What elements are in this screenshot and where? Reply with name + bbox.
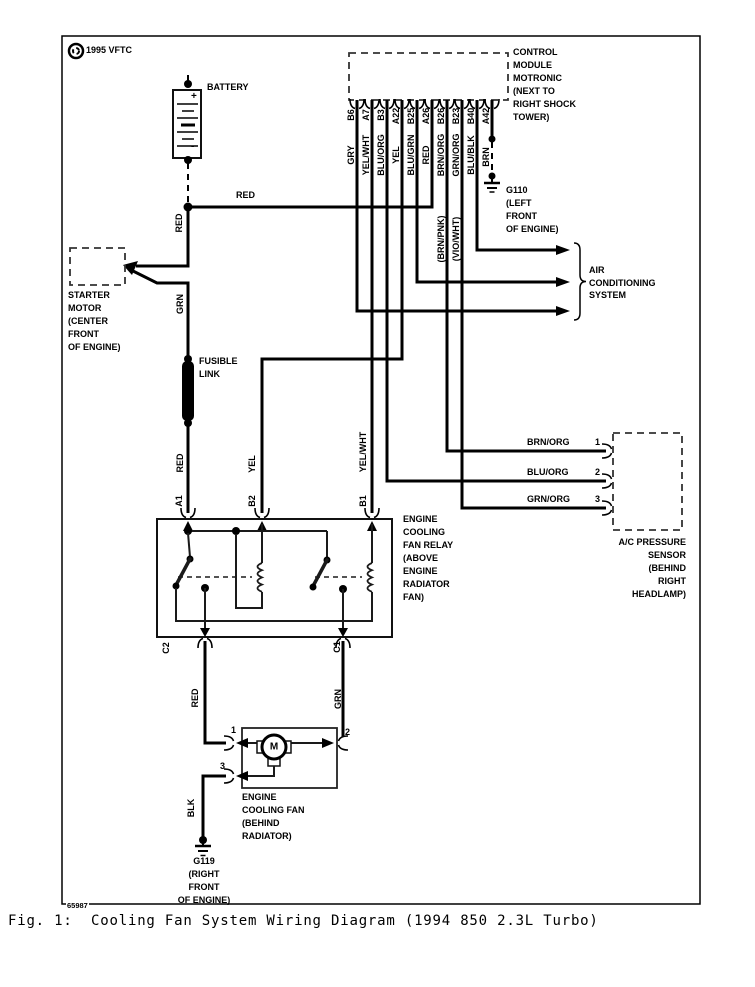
relay-label: ENGINE COOLING FAN RELAY (ABOVE ENGINE R… — [403, 513, 453, 604]
sensor-wire-color: BRN/ORG — [527, 437, 570, 447]
ac-arrows — [556, 243, 586, 320]
engine-cooling-fan-label: ENGINE COOLING FAN (BEHIND RADIATOR) — [242, 791, 305, 843]
module-pin-id: B23 — [451, 108, 461, 125]
module-pin-color: YEL/WHT — [361, 135, 371, 176]
sensor-pin-num: 3 — [595, 494, 600, 504]
wiring-diagram-page: 1995 VFTC BATTERY + - RED CONTROL MODULE… — [0, 0, 755, 987]
relay-pin-c2: C2 — [161, 642, 171, 654]
module-pin-color: BLU/BLK — [466, 135, 476, 175]
relay-pin-a1: A1 — [174, 495, 184, 507]
module-pin-id: B3 — [376, 109, 386, 121]
wire-label-red-feed: RED — [236, 190, 255, 200]
battery-label: BATTERY — [207, 82, 249, 92]
g119-label: G119 (RIGHT FRONT OF ENGINE) — [158, 855, 250, 907]
alt-color-label: (VIO/WHT) — [451, 217, 461, 262]
battery-plus: + — [191, 91, 197, 102]
g119-ground-icon — [195, 836, 211, 856]
wire-label-grn: GRN — [175, 294, 185, 314]
module-pin-color: RED — [421, 145, 431, 164]
module-pin-color: YEL — [391, 146, 401, 164]
wire-label-red: RED — [174, 213, 184, 232]
module-pin-id: A26 — [421, 108, 431, 125]
wire-label-yel: YEL — [247, 455, 257, 473]
wire-label-red: RED — [190, 688, 200, 707]
logo-text: 1995 VFTC — [86, 45, 132, 55]
control-module-box — [349, 53, 508, 100]
module-pin-color: BRN/ORG — [436, 134, 446, 177]
module-pin-color: BRN — [481, 147, 491, 167]
module-pin-color: GRN/ORG — [451, 133, 461, 176]
module-pin-id: A22 — [391, 108, 401, 125]
g110-ground-icon — [484, 173, 500, 193]
relay-box — [157, 519, 392, 637]
sensor-pin-num: 2 — [595, 467, 600, 477]
wire-label-red: RED — [175, 453, 185, 472]
control-module-label: CONTROL MODULE MOTRONIC (NEXT TO RIGHT S… — [513, 46, 576, 124]
alt-color-label: (BRN/PNK) — [436, 216, 446, 263]
module-pin-id: A7 — [361, 109, 371, 121]
wire-label-blk: BLK — [186, 799, 196, 818]
wire-label-grn: GRN — [333, 689, 343, 709]
module-pin-color: BLU/GRN — [406, 135, 416, 176]
sensor-pin-num: 1 — [595, 437, 600, 447]
relay-pin-c1: C1 — [332, 641, 342, 653]
g110-label: G110 (LEFT FRONT OF ENGINE) — [506, 184, 559, 236]
ac-pressure-sensor-label: A/C PRESSURE SENSOR (BEHIND RIGHT HEADLA… — [556, 536, 686, 601]
starter-motor-box — [70, 248, 125, 285]
fusible-link-symbol — [182, 355, 194, 427]
brace — [574, 243, 586, 320]
relay-pin-b2: B2 — [247, 495, 257, 507]
motor-letter: M — [270, 742, 278, 753]
figure-caption: Fig. 1: Cooling Fan System Wiring Diagra… — [8, 913, 599, 929]
wire-label-yelwht: YEL/WHT — [358, 432, 368, 473]
ac-system-label: AIR CONDITIONING SYSTEM — [589, 264, 656, 302]
ac-pressure-sensor-box — [613, 433, 682, 530]
sensor-wire-color: BLU/ORG — [527, 467, 569, 477]
doc-number: 65987 — [66, 901, 89, 910]
module-pin-color: BLU/ORG — [376, 134, 386, 176]
fan-pin-1: 1 — [231, 725, 236, 735]
module-pin-id: B25 — [406, 108, 416, 125]
module-pin-id: B26 — [436, 108, 446, 125]
module-pin-color: GRY — [346, 145, 356, 164]
fan-pin-3: 3 — [220, 761, 225, 771]
module-pin-id: A42 — [481, 108, 491, 125]
module-pin-id: B40 — [466, 108, 476, 125]
fusible-link-label: FUSIBLE LINK — [199, 355, 238, 381]
battery-minus: - — [191, 141, 194, 152]
relay-internals — [173, 521, 378, 637]
sensor-wire-color: GRN/ORG — [527, 494, 570, 504]
relay-pin-b1: B1 — [358, 495, 368, 507]
logo-icon — [69, 44, 83, 58]
module-pin-id: B6 — [346, 109, 356, 121]
fan-pin-2: 2 — [345, 727, 350, 737]
starter-motor-label: STARTER MOTOR (CENTER FRONT OF ENGINE) — [68, 289, 121, 354]
fan-assembly — [236, 728, 337, 788]
